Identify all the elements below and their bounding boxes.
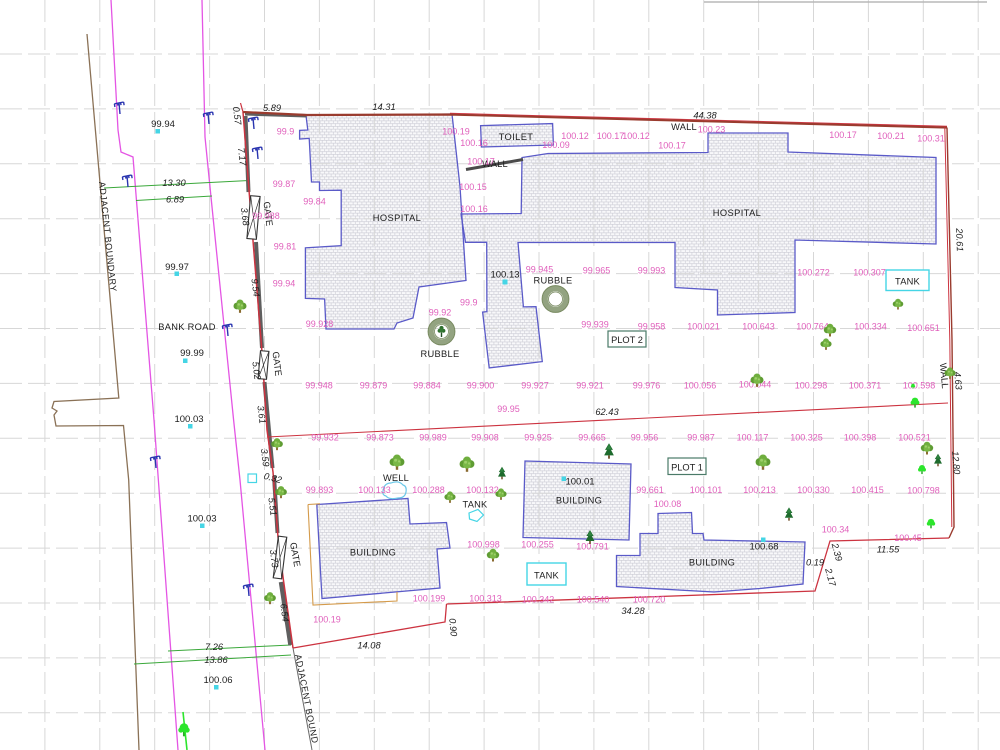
svg-text:62.43: 62.43 — [595, 407, 619, 417]
svg-text:100.21: 100.21 — [877, 131, 905, 141]
svg-text:100.19: 100.19 — [313, 615, 341, 625]
svg-text:99.956: 99.956 — [631, 433, 659, 443]
svg-text:99.94: 99.94 — [273, 279, 296, 289]
svg-text:5.89: 5.89 — [263, 103, 281, 113]
svg-text:100.03: 100.03 — [174, 414, 203, 425]
svg-text:0.19: 0.19 — [806, 558, 824, 568]
svg-text:13.30: 13.30 — [162, 178, 186, 188]
svg-text:100.325: 100.325 — [790, 433, 823, 443]
svg-text:100.521: 100.521 — [898, 433, 931, 443]
svg-text:BUILDING: BUILDING — [689, 558, 735, 568]
svg-text:99.928: 99.928 — [306, 319, 334, 329]
svg-text:100.23: 100.23 — [698, 125, 726, 135]
svg-text:99.932: 99.932 — [311, 433, 339, 443]
svg-text:99.958: 99.958 — [638, 322, 666, 332]
svg-text:100.598: 100.598 — [903, 381, 936, 391]
svg-text:99.987: 99.987 — [687, 433, 715, 443]
svg-text:100.03: 100.03 — [187, 514, 216, 525]
svg-text:99.873: 99.873 — [366, 433, 394, 443]
svg-text:99.900: 99.900 — [467, 381, 495, 391]
svg-text:BUILDING: BUILDING — [556, 496, 602, 506]
svg-text:13.86: 13.86 — [204, 655, 228, 665]
svg-text:100.643: 100.643 — [742, 322, 775, 332]
svg-text:TANK: TANK — [895, 277, 921, 287]
svg-text:100.34: 100.34 — [822, 525, 850, 535]
svg-text:99.988: 99.988 — [252, 211, 280, 221]
svg-text:100.08: 100.08 — [654, 499, 682, 509]
svg-text:99.927: 99.927 — [521, 381, 549, 391]
svg-text:100.307: 100.307 — [853, 268, 886, 278]
svg-text:99.661: 99.661 — [636, 485, 664, 495]
svg-text:99.893: 99.893 — [306, 485, 334, 495]
svg-text:100.45: 100.45 — [894, 533, 922, 543]
svg-text:99.965: 99.965 — [583, 266, 611, 276]
svg-text:100.31: 100.31 — [917, 134, 945, 144]
svg-text:99.81: 99.81 — [274, 242, 297, 252]
svg-text:100.021: 100.021 — [687, 322, 720, 332]
svg-text:100.133: 100.133 — [358, 485, 391, 495]
svg-text:99.879: 99.879 — [360, 381, 388, 391]
svg-text:100.398: 100.398 — [844, 433, 877, 443]
svg-text:100.17: 100.17 — [467, 157, 495, 167]
svg-text:PLOT 2: PLOT 2 — [611, 335, 643, 345]
svg-text:TANK: TANK — [534, 571, 560, 581]
svg-text:100.117: 100.117 — [737, 433, 769, 443]
svg-text:100.998: 100.998 — [467, 540, 500, 550]
svg-text:100.199: 100.199 — [413, 594, 446, 604]
svg-text:99.976: 99.976 — [633, 381, 661, 391]
svg-text:99.9: 99.9 — [460, 298, 478, 308]
svg-text:100.720: 100.720 — [633, 595, 666, 605]
svg-text:WALL: WALL — [671, 122, 697, 132]
svg-text:99.945: 99.945 — [526, 265, 554, 275]
svg-text:100.298: 100.298 — [795, 381, 828, 391]
svg-text:99.84: 99.84 — [303, 197, 326, 207]
svg-text:100.15: 100.15 — [459, 182, 487, 192]
svg-text:99.99: 99.99 — [180, 348, 204, 359]
svg-text:BUILDING: BUILDING — [350, 548, 396, 558]
svg-text:99.884: 99.884 — [413, 381, 441, 391]
svg-text:99.95: 99.95 — [497, 404, 520, 414]
svg-text:6.89: 6.89 — [166, 195, 184, 205]
svg-text:99.993: 99.993 — [638, 266, 666, 276]
svg-text:7.26: 7.26 — [205, 642, 224, 652]
svg-text:100.313: 100.313 — [469, 594, 502, 604]
svg-text:100.272: 100.272 — [797, 268, 830, 278]
svg-text:TANK: TANK — [463, 500, 489, 510]
svg-text:100.06: 100.06 — [203, 675, 232, 686]
svg-text:100.540: 100.540 — [577, 595, 610, 605]
svg-text:99.921: 99.921 — [576, 381, 604, 391]
svg-text:100.330: 100.330 — [797, 485, 830, 495]
svg-text:20.61: 20.61 — [954, 227, 965, 252]
svg-text:99.97: 99.97 — [165, 262, 189, 273]
svg-text:100.056: 100.056 — [684, 381, 717, 391]
svg-text:100.791: 100.791 — [576, 542, 609, 552]
svg-text:99.939: 99.939 — [581, 320, 609, 330]
svg-text:99.9: 99.9 — [277, 127, 295, 137]
svg-text:RUBBLE: RUBBLE — [533, 276, 572, 286]
svg-text:100.12: 100.12 — [622, 131, 650, 141]
svg-text:PLOT 1: PLOT 1 — [671, 463, 703, 473]
svg-text:100.17: 100.17 — [597, 131, 625, 141]
svg-text:34.28: 34.28 — [621, 606, 645, 616]
svg-text:100.288: 100.288 — [412, 485, 445, 495]
svg-text:HOSPITAL: HOSPITAL — [373, 213, 422, 223]
svg-text:99.908: 99.908 — [471, 433, 499, 443]
svg-text:99.92: 99.92 — [429, 308, 452, 318]
svg-text:99.989: 99.989 — [419, 433, 447, 443]
svg-text:100.415: 100.415 — [851, 485, 884, 495]
svg-text:99.94: 99.94 — [151, 119, 175, 130]
svg-text:99.925: 99.925 — [524, 433, 552, 443]
svg-text:100.17: 100.17 — [829, 130, 857, 140]
svg-text:100.798: 100.798 — [907, 486, 940, 496]
svg-text:100.371: 100.371 — [849, 381, 882, 391]
svg-text:0.90: 0.90 — [447, 618, 459, 638]
svg-text:12.80: 12.80 — [950, 451, 962, 476]
svg-text:100.213: 100.213 — [743, 485, 776, 495]
svg-text:100.68: 100.68 — [749, 542, 778, 553]
svg-text:99.87: 99.87 — [273, 179, 296, 189]
svg-text:100.132: 100.132 — [466, 485, 499, 495]
svg-text:14.08: 14.08 — [357, 641, 381, 651]
svg-text:100.342: 100.342 — [522, 595, 555, 605]
svg-text:99.665: 99.665 — [578, 433, 606, 443]
svg-text:100.651: 100.651 — [907, 323, 940, 333]
svg-text:BANK ROAD: BANK ROAD — [158, 322, 215, 332]
svg-text:100.255: 100.255 — [521, 540, 554, 550]
svg-text:14.31: 14.31 — [372, 102, 395, 112]
svg-text:99.948: 99.948 — [305, 381, 333, 391]
svg-text:HOSPITAL: HOSPITAL — [713, 208, 762, 218]
svg-text:100.13: 100.13 — [490, 270, 519, 281]
svg-text:100.17: 100.17 — [658, 141, 686, 151]
svg-text:TOILET: TOILET — [499, 132, 534, 142]
svg-text:44.38: 44.38 — [693, 111, 717, 121]
svg-text:100.334: 100.334 — [854, 322, 887, 332]
svg-text:100.01: 100.01 — [565, 477, 594, 488]
svg-text:RUBBLE: RUBBLE — [420, 349, 459, 359]
svg-text:11.55: 11.55 — [877, 545, 900, 555]
svg-text:100.101: 100.101 — [690, 485, 723, 495]
svg-text:100.16: 100.16 — [460, 204, 488, 214]
svg-text:100.19: 100.19 — [442, 127, 470, 137]
svg-text:100.09: 100.09 — [542, 140, 570, 150]
svg-text:100.16: 100.16 — [460, 138, 488, 148]
